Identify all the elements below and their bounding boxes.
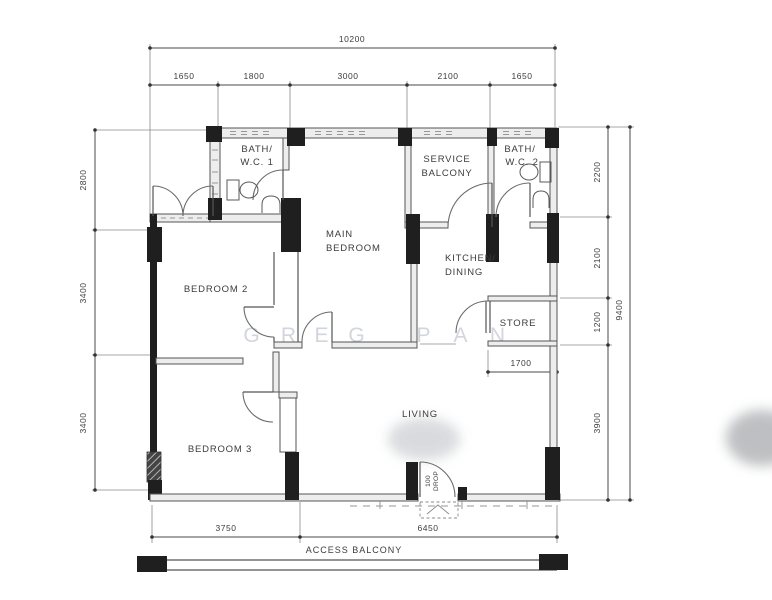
label-service-balcony-line2: BALCONY — [421, 168, 472, 179]
dim-top-seg: 1650 — [512, 71, 533, 81]
blur-smudge-living — [388, 418, 460, 460]
balcony-end-cap-left — [137, 556, 167, 572]
wall-bed3-living-divider — [280, 398, 296, 452]
door-arc-entrance-left — [153, 186, 183, 216]
label-main-bedroom-line1: MAIN — [326, 229, 353, 240]
pier — [206, 126, 222, 142]
label-kitchen-line1: KITCHEN/ — [445, 253, 496, 264]
dim-left-seg: 3400 — [78, 413, 88, 434]
wall-right — [550, 128, 557, 500]
door-arc-bedroom3 — [243, 392, 273, 422]
pier — [285, 452, 299, 500]
label-access-balcony: ACCESS BALCONY — [306, 545, 403, 555]
label-bath1-line1: BATH/ — [241, 144, 272, 155]
label-drop-line2: DROP — [433, 471, 440, 491]
dim-right-seg: 2100 — [592, 248, 602, 269]
label-bedroom2: BEDROOM 2 — [184, 284, 248, 295]
pier-left-top — [147, 227, 162, 262]
pier-left-hatched — [147, 452, 161, 482]
wall-top — [210, 128, 557, 138]
label-store: STORE — [500, 318, 537, 329]
wall-balcony-bath2-divider — [488, 138, 494, 222]
dimension-right: 2200 2100 1200 3900 9400 — [558, 125, 634, 502]
label-bath2-line1: BATH/ — [504, 144, 535, 155]
wall-hall-a — [274, 342, 302, 348]
pier — [545, 128, 559, 148]
dim-top-seg: 2100 — [438, 71, 459, 81]
wall-bed23-divider — [156, 358, 243, 364]
wall-bottom-left — [150, 494, 418, 501]
watermark-letter: E — [314, 324, 329, 347]
floor-plan-page: G R E G P A N 10200 1650 1800 3000 2100 … — [0, 0, 772, 600]
pier — [398, 128, 412, 146]
dimension-top: 10200 1650 1800 3000 2100 1650 — [148, 34, 557, 214]
label-living: LIVING — [402, 409, 438, 420]
dim-right-seg: 1200 — [592, 312, 602, 333]
dim-bottom-seg: 6450 — [418, 523, 439, 533]
wall-store-top — [488, 296, 557, 301]
dimension-bottom: 3750 6450 ACCESS BALCONY — [150, 502, 559, 555]
pier — [208, 198, 222, 220]
pier — [458, 487, 467, 500]
pier — [547, 213, 559, 263]
door-arc-bath1 — [253, 170, 283, 200]
dim-right-seg: 2200 — [592, 162, 602, 183]
label-bath1-line2: W.C. 1 — [240, 157, 273, 168]
access-balcony-strip — [137, 554, 568, 572]
pier — [287, 128, 305, 146]
entry-threshold — [420, 502, 458, 518]
label-bedroom3: BEDROOM 3 — [188, 444, 252, 455]
basin-bath1 — [262, 196, 280, 213]
toilet-tank-bath2 — [540, 162, 551, 182]
pier — [487, 128, 497, 146]
label-bath2-line2: W.C. 2 — [505, 157, 538, 168]
wall-hall-b — [332, 342, 417, 348]
fixtures — [227, 162, 551, 213]
dimension-left: 2800 3400 3400 — [78, 128, 212, 492]
door-arc-bath2 — [496, 183, 530, 217]
dimension-store: 1700 — [486, 350, 559, 377]
watermark-letter: A — [453, 324, 468, 347]
dim-left-seg: 3400 — [78, 283, 88, 304]
label-service-balcony-line1: SERVICE — [423, 154, 470, 165]
dim-top-seg: 1650 — [174, 71, 195, 81]
pier — [545, 447, 560, 500]
balcony-end-cap-right — [539, 554, 568, 570]
dim-store-width: 1700 — [511, 358, 532, 368]
label-main-bedroom-line2: BEDROOM — [326, 243, 381, 254]
wall-store-bottom — [488, 341, 557, 346]
dim-left-seg: 2800 — [78, 170, 88, 191]
wall-bed3-nook — [273, 352, 279, 392]
dim-top-seg: 3000 — [338, 71, 359, 81]
watermark-letter: P — [416, 324, 431, 347]
label-kitchen-line2: DINING — [445, 267, 483, 278]
dim-top-seg: 1800 — [244, 71, 265, 81]
toilet-tank-bath1 — [227, 180, 239, 200]
pier — [406, 462, 418, 500]
blur-smudge-right-edge — [726, 410, 772, 466]
dim-bottom-seg: 3750 — [216, 523, 237, 533]
dim-right-total: 9400 — [614, 300, 624, 321]
floor-plan-drawing: G R E G P A N 10200 1650 1800 3000 2100 … — [0, 0, 772, 600]
label-drop-line1: 100 — [425, 475, 432, 487]
wall-bottom-right — [458, 494, 560, 501]
pier — [406, 214, 420, 264]
wall-service-balcony-left — [405, 138, 411, 222]
door-arc-service-balcony — [448, 183, 492, 227]
basin-bath2 — [533, 191, 549, 208]
dim-right-seg: 3900 — [592, 413, 602, 434]
toilet-bowl-bath1 — [240, 182, 258, 198]
dim-top-total: 10200 — [339, 34, 365, 44]
pier — [281, 198, 301, 252]
wall-bed3-stub — [279, 392, 297, 398]
